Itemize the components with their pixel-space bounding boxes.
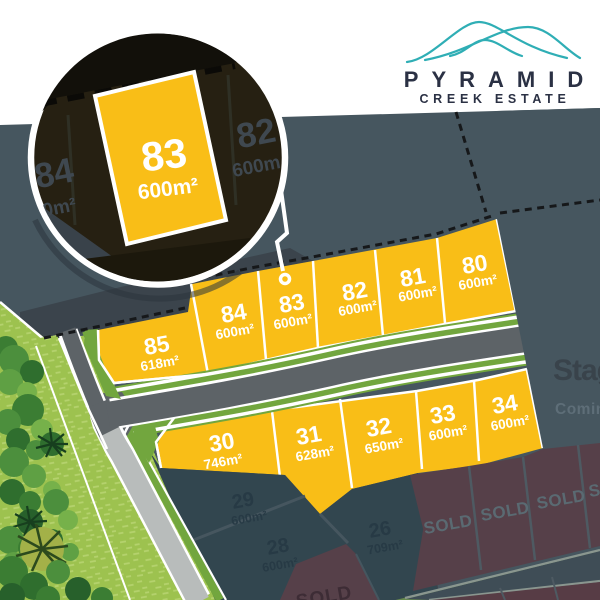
svg-text:Coming Soon: Coming Soon <box>555 401 600 418</box>
svg-text:CREEK ESTATE: CREEK ESTATE <box>419 92 570 106</box>
svg-text:Stage 2: Stage 2 <box>553 354 600 387</box>
svg-text:84: 84 <box>31 151 77 197</box>
svg-text:83: 83 <box>138 129 189 180</box>
svg-text:82: 82 <box>233 111 279 157</box>
svg-text:PYRAMID: PYRAMID <box>404 67 596 92</box>
